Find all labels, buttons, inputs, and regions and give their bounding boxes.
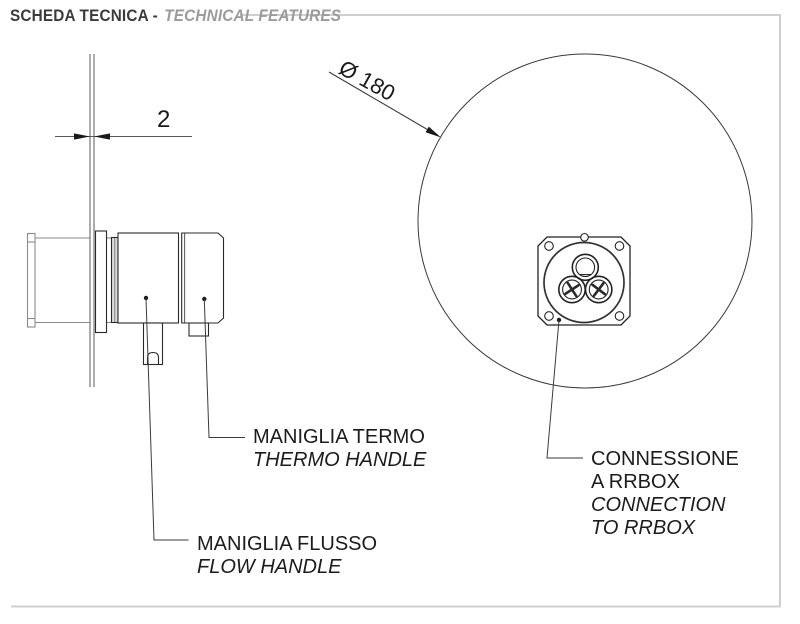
rrbox-top-notch — [581, 234, 589, 242]
diameter-arrow — [426, 127, 441, 138]
side-view-drawing — [28, 54, 246, 540]
header-title-english: TECHNICAL FEATURES — [164, 6, 341, 25]
flow-handle-label-it: MANIGLIA FLUSSO — [197, 533, 377, 556]
wall-thickness-dimension — [55, 133, 192, 139]
dimension-arrow-right — [94, 133, 110, 139]
wall-flange-plate — [96, 231, 107, 333]
flow-handle-lever — [144, 323, 163, 365]
header-title-italian: SCHEDA TECNICA - — [10, 6, 158, 25]
front-view-drawing — [329, 54, 752, 458]
rrbox-label-en-line2: TO RRBOX — [591, 517, 739, 540]
thermo-handle-label-en: THERMO HANDLE — [253, 449, 426, 472]
wall-section-lines — [90, 54, 94, 387]
technical-sheet-page: SCHEDA TECNICA -TECHNICAL FEATURES 2 Ø 1… — [0, 0, 800, 624]
dimension-arrow-left — [74, 133, 90, 139]
sheet-header: SCHEDA TECNICA -TECHNICAL FEATURES — [10, 6, 341, 26]
rrbox-connection-label: CONNESSIONE A RRBOX CONNECTION TO RRBOX — [591, 448, 739, 540]
wall-thickness-value: 2 — [157, 106, 170, 134]
rrbox-label-it-line1: CONNESSIONE — [591, 448, 739, 471]
flow-handle-cylinder — [118, 233, 179, 323]
thermo-handle-label-it: MANIGLIA TERMO — [253, 426, 426, 449]
thermo-handle-cylinder — [182, 233, 224, 323]
rrbox-connection-detail — [538, 234, 630, 459]
rrbox-leader-line — [547, 320, 583, 458]
thermo-handle-label: MANIGLIA TERMO THERMO HANDLE — [253, 426, 426, 472]
water-port-right — [586, 276, 612, 302]
rrbox-label-en-line1: CONNECTION — [591, 494, 739, 517]
flow-handle-label: MANIGLIA FLUSSO FLOW HANDLE — [197, 533, 377, 579]
flow-handle-label-en: FLOW HANDLE — [197, 556, 377, 579]
rrbox-label-it-line2: A RRBOX — [591, 471, 739, 494]
water-port-left — [559, 276, 585, 302]
plate-circle-diameter-180 — [418, 54, 752, 388]
